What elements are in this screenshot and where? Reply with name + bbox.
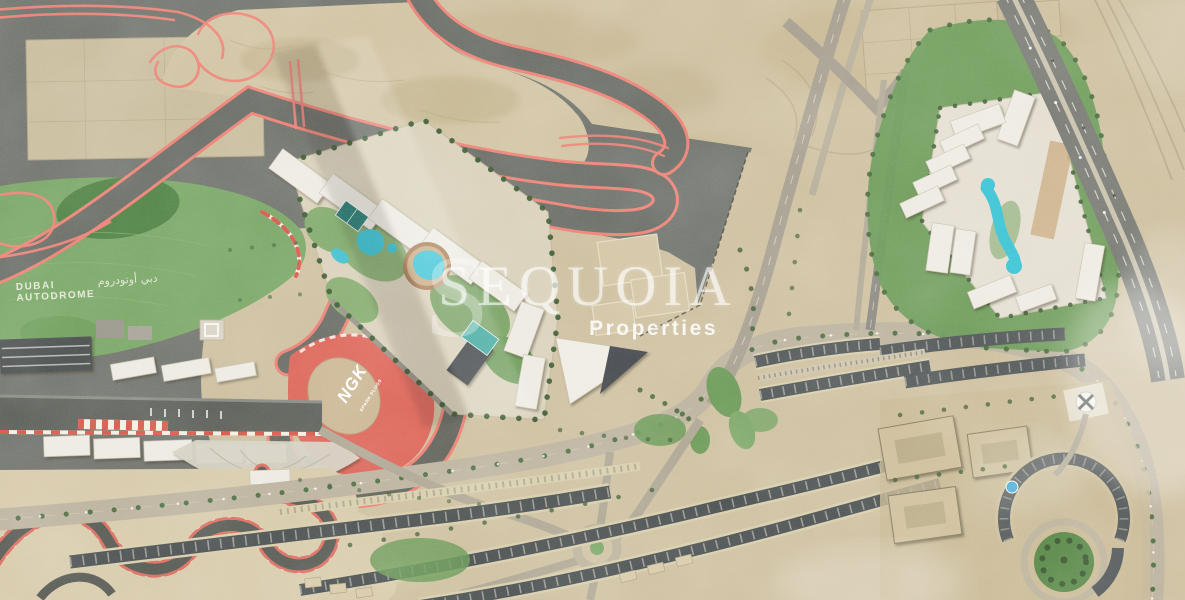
watermark-brand: SEQUOIA	[438, 255, 737, 318]
watermark-tagline: Properties	[589, 317, 718, 340]
aerial-photo: DUBAI دبي أوتودروم AUTODROME	[0, 0, 1185, 600]
satellite-image: DUBAI دبي أوتودروم AUTODROME	[0, 0, 1185, 600]
